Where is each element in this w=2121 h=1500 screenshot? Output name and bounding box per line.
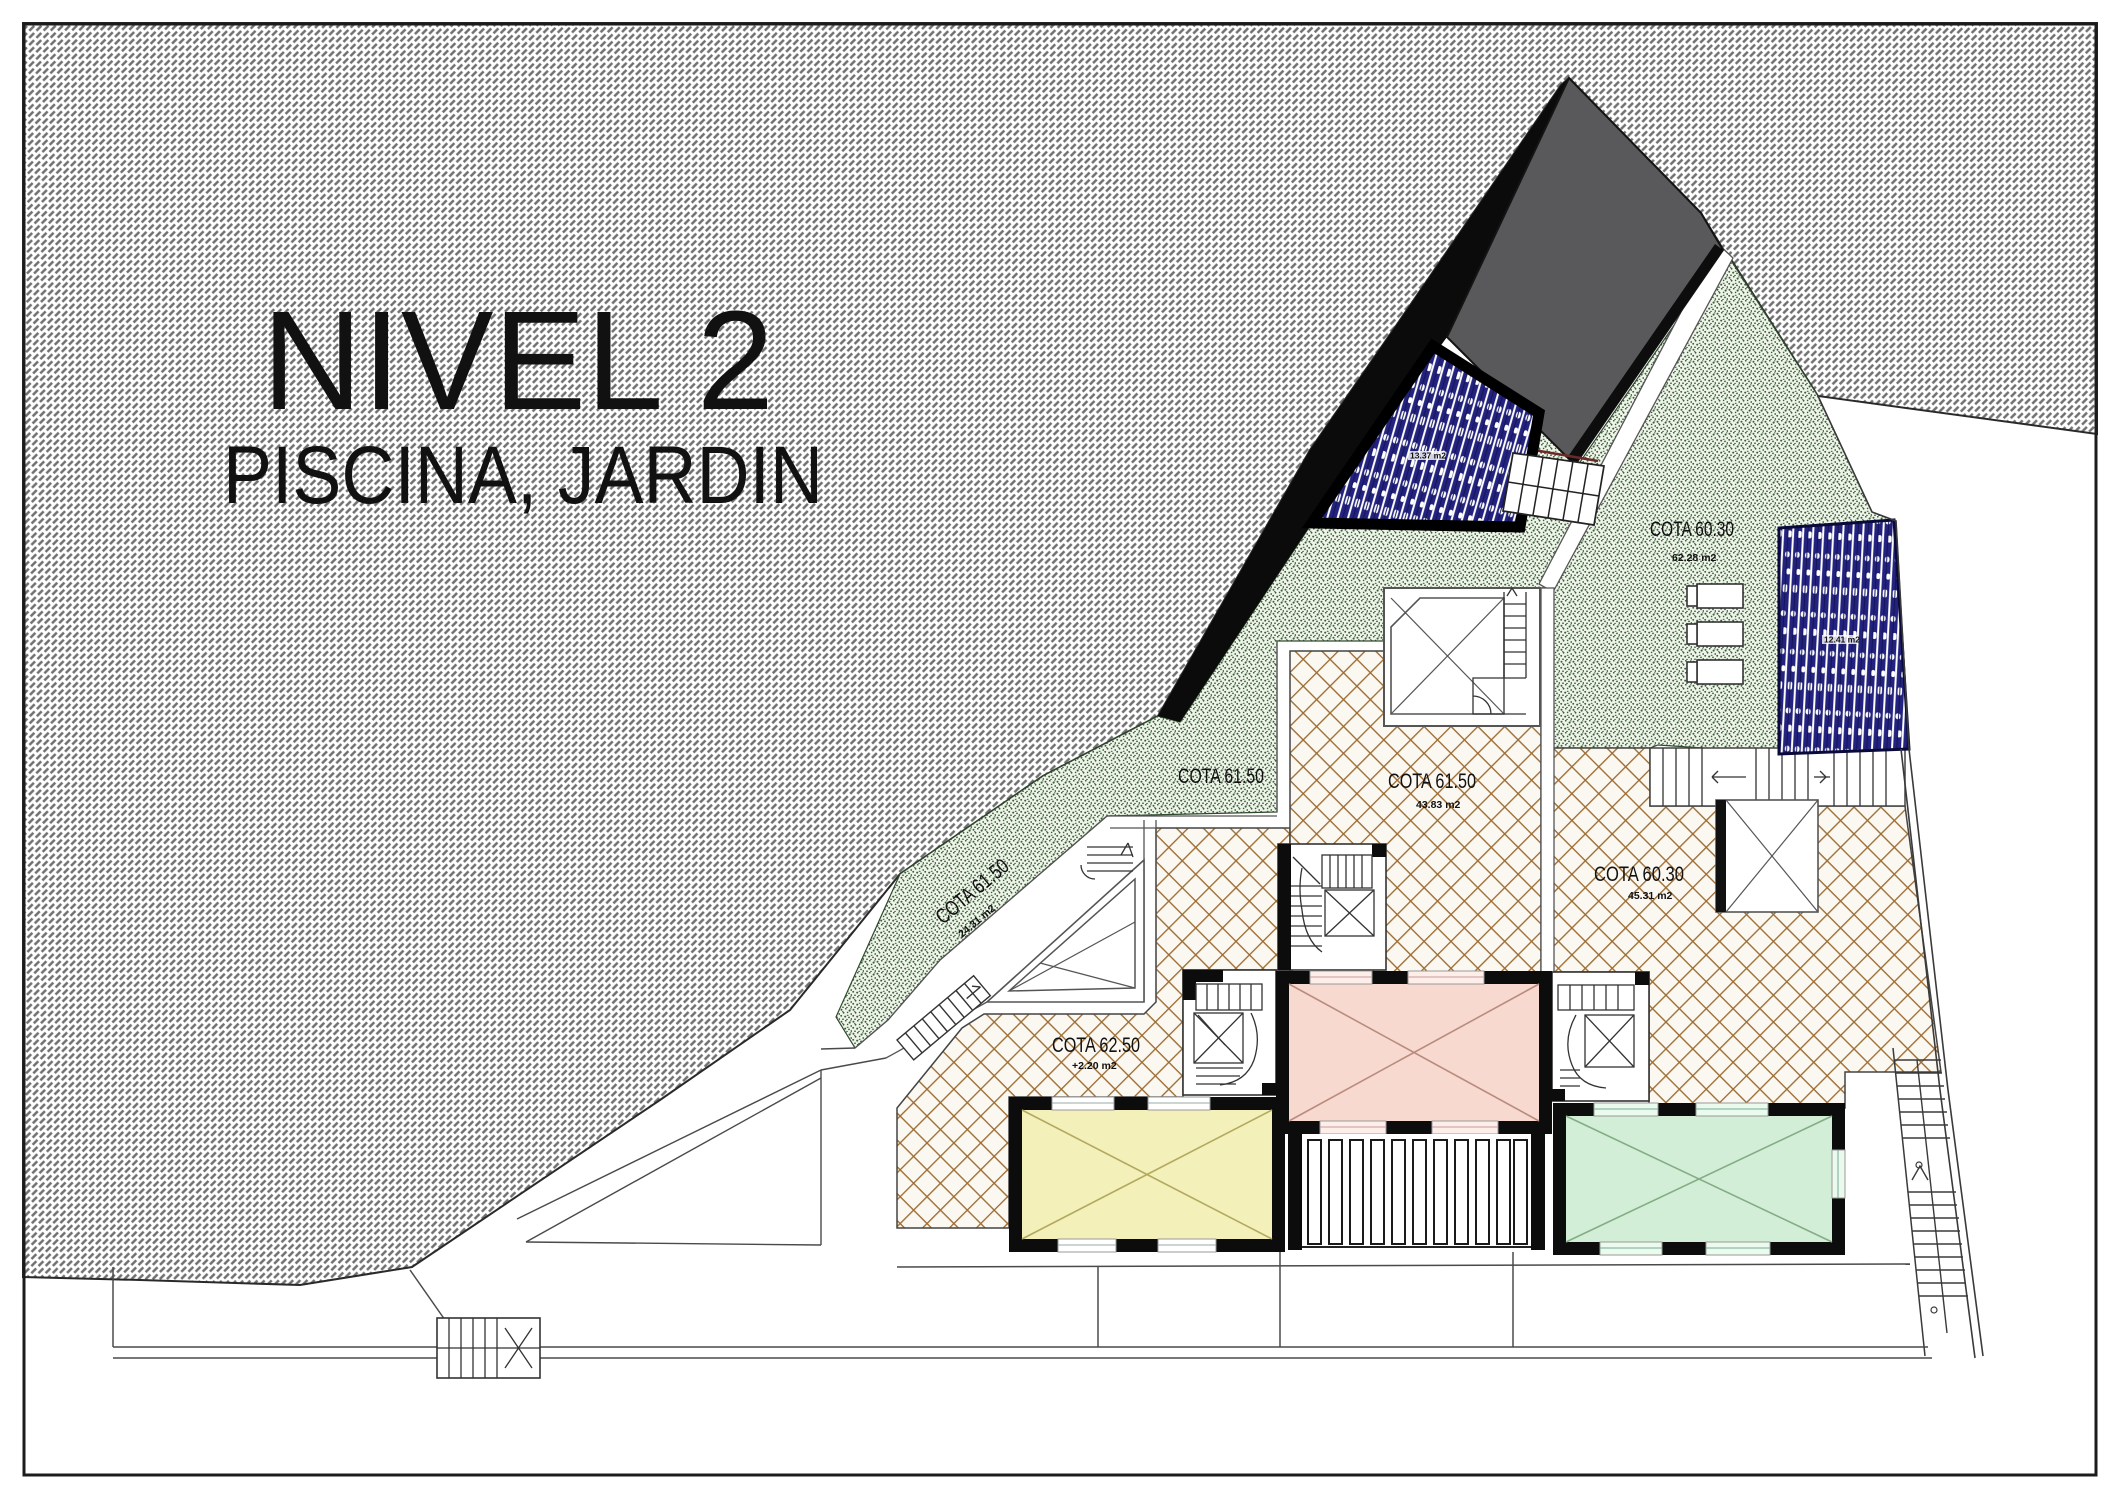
svg-text:COTA 60.30: COTA 60.30: [1594, 863, 1684, 886]
svg-text:COTA 62.50: COTA 62.50: [1052, 1034, 1140, 1057]
svg-text:13.37 m2: 13.37 m2: [1410, 451, 1446, 461]
svg-text:COTA 61.50: COTA 61.50: [1388, 770, 1476, 793]
svg-text:PISCINA, JARDIN: PISCINA, JARDIN: [223, 430, 823, 521]
svg-text:COTA 61.50: COTA 61.50: [1178, 765, 1264, 788]
svg-text:62.28 m2: 62.28 m2: [1672, 552, 1717, 564]
svg-text:COTA 60.30: COTA 60.30: [1650, 518, 1734, 541]
svg-text:+2.20 m2: +2.20 m2: [1072, 1060, 1117, 1072]
svg-text:12.41 m2: 12.41 m2: [1824, 635, 1860, 645]
svg-text:NIVEL 2: NIVEL 2: [262, 281, 774, 439]
svg-text:43.83 m2: 43.83 m2: [1416, 799, 1461, 811]
svg-text:45.31 m2: 45.31 m2: [1628, 890, 1673, 902]
